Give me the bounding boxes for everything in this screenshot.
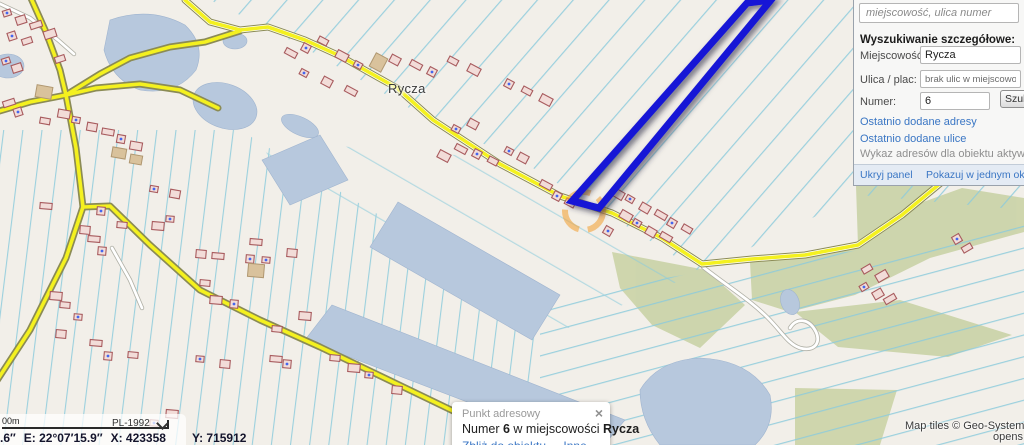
- address-place: Rycza: [603, 422, 639, 436]
- single-window-link[interactable]: Pokazuj w jednym oknie: [926, 169, 1024, 181]
- panel-footer: Ukryj panel Pokazuj w jednym oknie: [854, 164, 1024, 185]
- map-attribution-line2: opens: [993, 431, 1023, 443]
- active-object-note: Wykaz adresów dla obiektu aktywnego l: [860, 148, 1024, 160]
- coordinates-readout: .6″E: 22°07′15.9″X: 423358Y: 715912: [0, 431, 254, 445]
- crs-label: PL-1992: [112, 418, 150, 429]
- detailed-search-title: Wyszukiwanie szczegółowe:: [860, 34, 1015, 46]
- numer-field[interactable]: [920, 92, 990, 110]
- numer-label: Numer:: [860, 96, 896, 108]
- map-application: Rycza Wyszukiwanie szczegółowe: Miejscow…: [0, 0, 1024, 445]
- coord-y: Y: 715912: [192, 431, 247, 445]
- coord-lat: .6″: [0, 431, 16, 445]
- miejscowosc-field[interactable]: [920, 46, 1021, 64]
- recent-streets-link[interactable]: Ostatnio dodane ulice: [860, 133, 966, 145]
- address-number: 6: [503, 422, 510, 436]
- popup-title: Punkt adresowy: [462, 408, 602, 420]
- popup-address-text: Numer 6 w miejscowości Rycza: [462, 422, 602, 436]
- coord-x: X: 423358: [111, 431, 166, 445]
- miejscowosc-label: Miejscowość:: [860, 50, 925, 62]
- ulica-field[interactable]: [920, 70, 1021, 88]
- search-button[interactable]: Szuk: [1000, 90, 1024, 108]
- other-link[interactable]: Inne: [563, 439, 586, 445]
- ulica-label: Ulica / plac:: [860, 74, 917, 86]
- zoom-to-object-link[interactable]: Zbliż do obiektu: [462, 439, 546, 445]
- recent-addresses-link[interactable]: Ostatnio dodane adresy: [860, 116, 977, 128]
- hide-panel-link[interactable]: Ukryj panel: [860, 169, 913, 181]
- close-icon[interactable]: ×: [595, 406, 603, 420]
- coord-lon: E: 22°07′15.9″: [24, 431, 103, 445]
- search-input[interactable]: [859, 3, 1019, 23]
- address-popup: Punkt adresowy × Numer 6 w miejscowości …: [452, 402, 610, 445]
- popup-links: Zbliż do obiektu Inne: [462, 439, 602, 445]
- search-panel: Wyszukiwanie szczegółowe: Miejscowość: U…: [853, 0, 1024, 186]
- place-label: Rycza: [388, 81, 426, 96]
